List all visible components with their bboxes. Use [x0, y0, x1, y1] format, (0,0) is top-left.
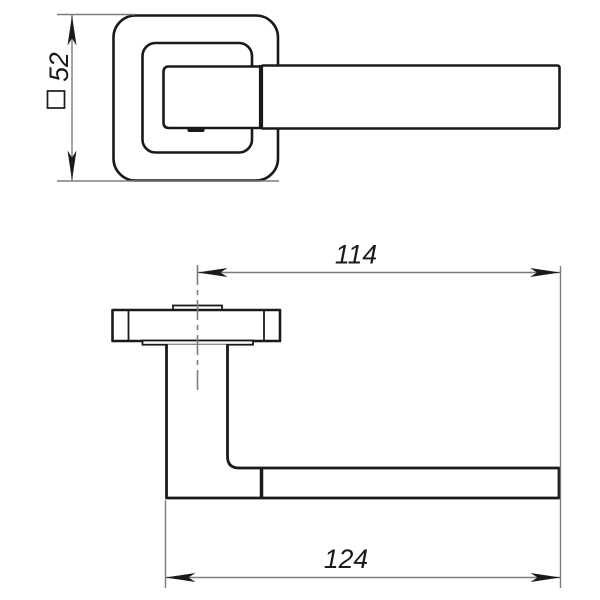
dimension-lever-from-center: 114	[198, 240, 561, 589]
overall-length-label: 124	[324, 544, 368, 574]
dimension-overall-length: 124	[166, 500, 561, 588]
spindle-notch	[188, 128, 205, 132]
lever-neck	[164, 67, 262, 129]
front-view	[114, 16, 560, 181]
rosette-side-profile	[113, 310, 281, 341]
lever-bar	[261, 66, 560, 129]
lever-from-center-label: 114	[335, 240, 377, 270]
side-view	[113, 265, 560, 498]
rosette-size-label: 52	[44, 52, 74, 82]
technical-drawing: 52 114 124	[0, 0, 600, 600]
square-symbol-icon	[48, 91, 65, 108]
handle-profile	[167, 345, 560, 499]
